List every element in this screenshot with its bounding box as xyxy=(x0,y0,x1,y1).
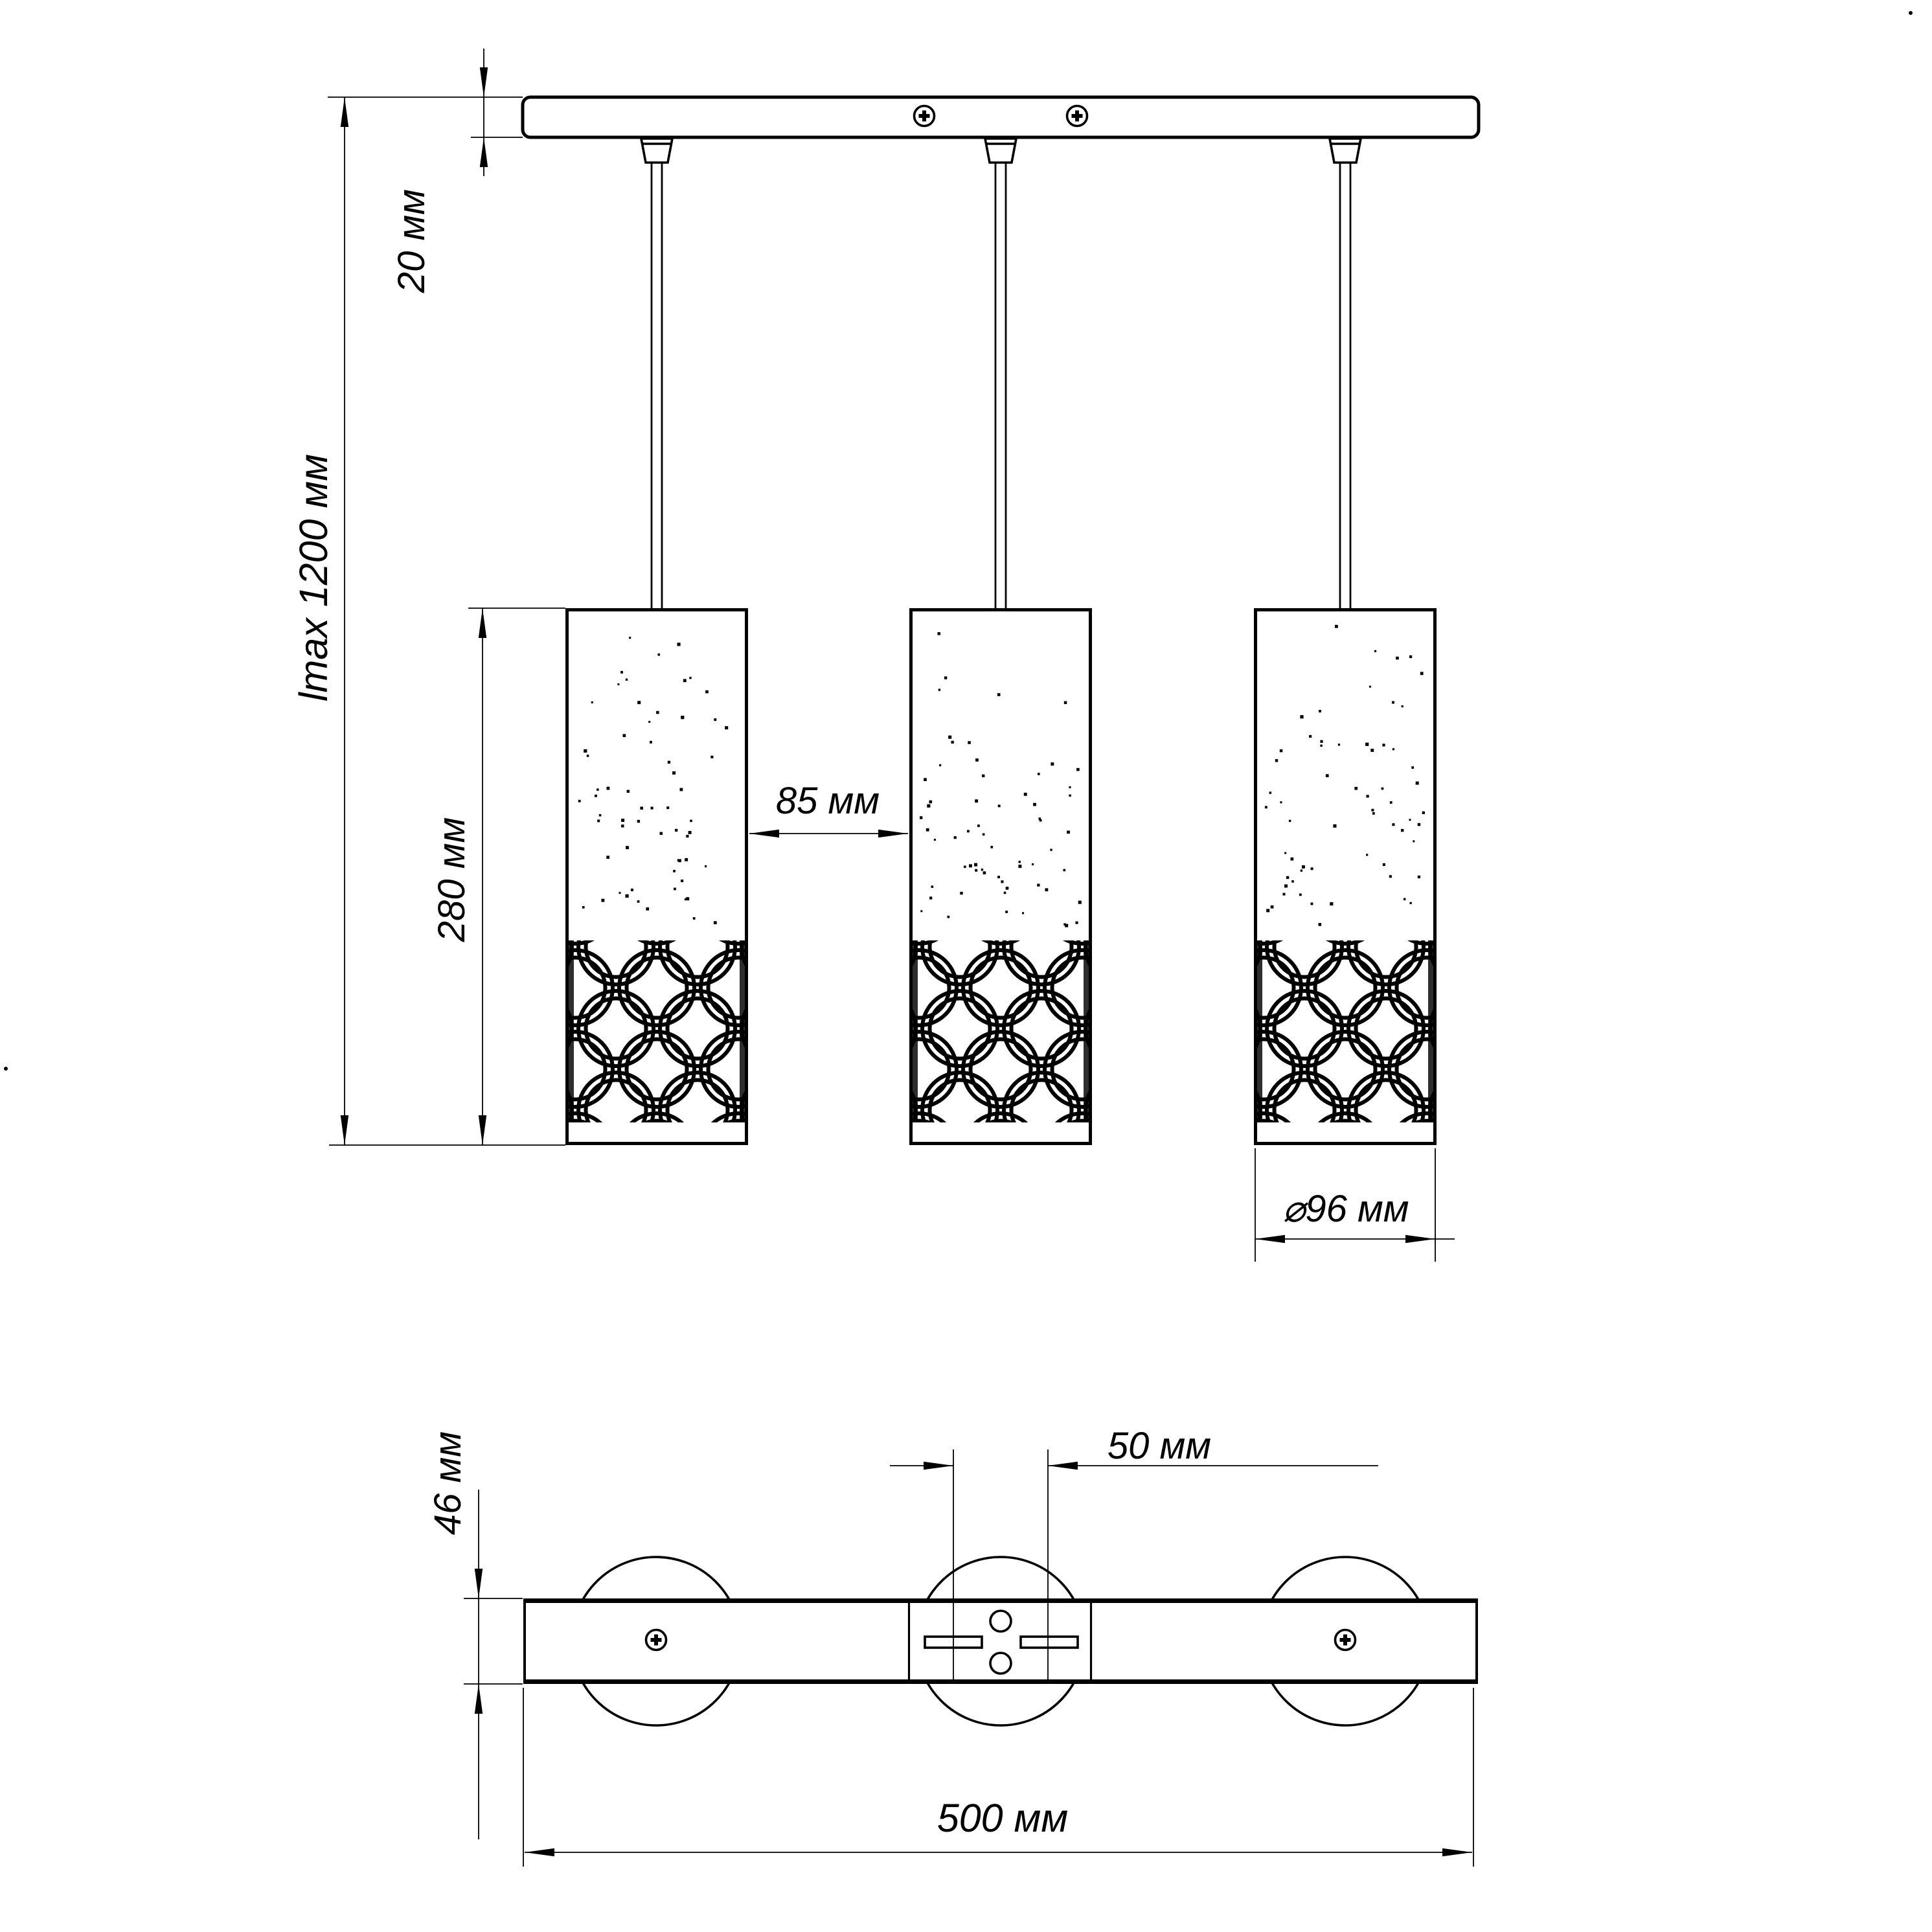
technical-drawing-sheet: 20 мм lmax 1200 мм 280 мм 85 мм xyxy=(0,0,1932,1932)
mounting-slot-right xyxy=(1021,1637,1078,1648)
shade-left xyxy=(567,610,747,1144)
dim-shade-diameter-label: ⌀96 мм xyxy=(1282,1188,1409,1230)
canopy-bar xyxy=(523,1598,1479,1684)
shade-right xyxy=(1256,610,1435,1144)
dim-canopy-depth-label: 46 мм xyxy=(427,1431,469,1535)
cable-hole-top xyxy=(990,1611,1011,1631)
pendant-lamp-drawing: 20 мм lmax 1200 мм 280 мм 85 мм xyxy=(0,0,1932,1932)
shade-sparkle-dots xyxy=(578,637,728,924)
speck-top-right xyxy=(1909,11,1913,15)
dim-shade-diameter: ⌀96 мм xyxy=(1255,1148,1455,1262)
shade-sparkle-dots xyxy=(1265,625,1425,926)
dim-canopy-thickness-label: 20 мм xyxy=(391,189,433,293)
dim-shade-height: 280 мм xyxy=(431,608,565,1145)
dim-shade-gap-label: 85 мм xyxy=(776,780,880,822)
dim-canopy-depth: 46 мм xyxy=(427,1431,523,1839)
bottom-view: 46 мм 50 мм 500 мм xyxy=(427,1425,1479,1867)
cord-left xyxy=(641,139,672,609)
screw-icon-bottom-left xyxy=(646,1630,666,1650)
cord-right xyxy=(1330,139,1361,609)
dim-canopy-thickness: 20 мм xyxy=(328,49,523,293)
screw-icon-left xyxy=(915,106,935,126)
shade-sparkle-dots xyxy=(920,632,1082,927)
dim-canopy-length-label: 500 мм xyxy=(937,1796,1068,1840)
speck-left-edge xyxy=(4,1067,8,1071)
shade-center xyxy=(911,610,1091,1144)
dim-shade-height-label: 280 мм xyxy=(431,817,473,942)
screw-icon-bottom-right xyxy=(1335,1630,1356,1650)
cable-hole-bottom xyxy=(990,1653,1011,1674)
cord-center xyxy=(985,139,1016,609)
front-view: 20 мм lmax 1200 мм 280 мм 85 мм xyxy=(291,49,1479,1262)
screw-icon-right xyxy=(1067,106,1087,126)
dim-slot-spacing-label: 50 мм xyxy=(1108,1425,1211,1467)
ceiling-bar xyxy=(523,97,1479,137)
dim-shade-gap: 85 мм xyxy=(749,780,908,837)
dim-canopy-length: 500 мм xyxy=(523,1688,1473,1867)
dim-max-length-label: lmax 1200 мм xyxy=(291,454,335,701)
